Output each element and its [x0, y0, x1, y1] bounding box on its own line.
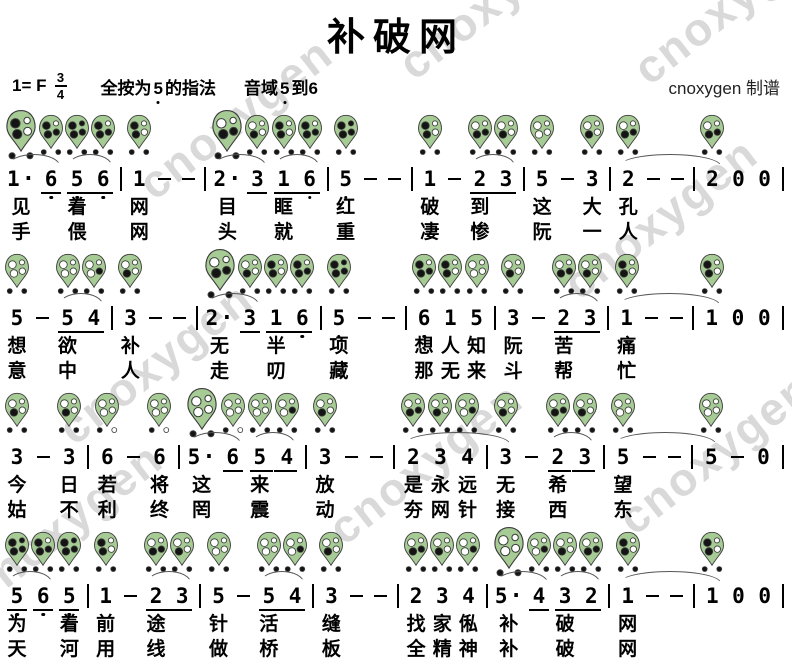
- lyric-line2-char: 走: [203, 359, 237, 384]
- note-cell: 2是夯: [400, 387, 426, 523]
- lyric-line2-char: [778, 220, 788, 245]
- note-number: 5: [470, 306, 483, 330]
- eighth-underline: [266, 331, 289, 333]
- lyric-line1-char: [752, 195, 778, 220]
- diagram-spacer: [726, 109, 752, 163]
- barline: [523, 167, 525, 191]
- lyric-line1-char: [220, 473, 246, 498]
- note-fingering-diagram: [699, 109, 725, 163]
- lyric-line1-char: 知: [464, 334, 490, 359]
- ocarina-leaf-icon: [400, 387, 426, 441]
- note-number: 0: [758, 306, 771, 330]
- duration-dash: [662, 441, 686, 473]
- duration-dash: [158, 178, 171, 181]
- duration-dash: [31, 441, 55, 473]
- note-cell: 5来震: [247, 387, 273, 523]
- note-cell: 2·目头: [210, 109, 244, 245]
- duration-dash: [555, 163, 579, 195]
- lyric-line1-char: 孔: [615, 195, 641, 220]
- diagram-spacer: [407, 109, 417, 163]
- note-number: 6: [303, 167, 316, 191]
- lyric-line2-char: [407, 220, 417, 245]
- note-number: 1: [277, 167, 290, 191]
- lyric-line2-char: 来: [464, 359, 490, 384]
- barline-cell: [393, 526, 403, 662]
- note-number: 6: [297, 163, 323, 195]
- lyric-line1-char: 欲: [55, 334, 81, 359]
- eighth-underline: [41, 192, 61, 194]
- barline-cell: [83, 387, 93, 523]
- note-fingering-diagram: [615, 526, 641, 580]
- lyric-line1-char: 途: [143, 612, 169, 637]
- barline: [301, 441, 311, 473]
- duration-dash: [640, 302, 664, 334]
- note-number: 5: [4, 302, 30, 334]
- duration-dash: [665, 163, 689, 195]
- note-number: 1: [133, 167, 146, 191]
- note-number: 2: [706, 167, 719, 191]
- duration-dash: [526, 302, 550, 334]
- dash-cell: [121, 387, 145, 523]
- note-cell: 5想意: [4, 248, 30, 384]
- lyric-line2-char: [698, 498, 724, 523]
- duration-dash: [641, 163, 665, 195]
- diagram-spacer: [599, 387, 609, 441]
- lyric-line2-char: [144, 359, 168, 384]
- time-signature: 34: [55, 71, 67, 102]
- barline: [607, 306, 609, 330]
- lyric-line2-char: [200, 220, 210, 245]
- note-cell: 3阮斗: [500, 248, 526, 384]
- diagram-spacer: [168, 248, 192, 302]
- duration-dash: [237, 595, 250, 598]
- lyric-line1-char: 眶: [271, 195, 297, 220]
- note-number: 1: [417, 163, 443, 195]
- note-number: 3: [500, 302, 526, 334]
- duration-dash: [520, 441, 544, 473]
- lyric-line1-char: 无: [203, 334, 237, 359]
- note-cell: 3: [577, 248, 603, 384]
- lyric-line1-char: [169, 612, 195, 637]
- barline-cell: [603, 248, 613, 384]
- lyric-line2-char: 网: [126, 220, 152, 245]
- barline: [107, 302, 117, 334]
- lyric-line1-char: 痛: [614, 334, 640, 359]
- lyric-line1-char: [605, 195, 615, 220]
- lyric-line1-char: [359, 195, 383, 220]
- eighth-underline: [59, 609, 79, 611]
- note-fingering-diagram: [312, 387, 338, 441]
- duration-dash: [443, 163, 467, 195]
- diagram-spacer: [778, 248, 788, 302]
- lyric-line2-char: 无: [437, 359, 463, 384]
- fingering-note: 5: [154, 79, 163, 99]
- lyric-line1-char: [699, 334, 725, 359]
- dash-cell: [152, 109, 176, 245]
- note-number: 2: [585, 584, 598, 608]
- diagram-spacer: [339, 387, 363, 441]
- duration-dash: [647, 178, 660, 181]
- barline-cell: [604, 526, 614, 662]
- note-number: 0: [732, 584, 745, 608]
- dash-cell: [339, 387, 363, 523]
- lyric-line2-char: 终: [146, 498, 172, 523]
- lyric-line2-char: [364, 498, 388, 523]
- eighth-underline: [554, 331, 577, 333]
- note-cell: 4远针: [454, 387, 480, 523]
- note-cell: 3永网: [427, 387, 453, 523]
- note-cell: 1·见手: [4, 109, 38, 245]
- duration-dash: [665, 580, 689, 612]
- barline: [192, 302, 202, 334]
- duration-dash: [374, 595, 387, 598]
- note-number: 0: [757, 445, 770, 469]
- lyric-line1-char: [665, 612, 689, 637]
- barline-cell: [301, 387, 311, 523]
- ocarina-leaf-icon: [289, 248, 315, 302]
- note-fingering-diagram: [56, 526, 82, 580]
- note-cell: 2: [699, 109, 725, 245]
- lyric-line1-char: 补: [117, 334, 143, 359]
- eighth-underline: [90, 192, 113, 194]
- diagram-spacer: [232, 526, 256, 580]
- diagram-spacer: [174, 387, 184, 441]
- range-to-note: 6: [308, 79, 317, 98]
- note-number: 4: [281, 445, 294, 469]
- low-octave-dot: [301, 335, 305, 339]
- dash-cell: [168, 248, 192, 384]
- note-number: 3: [436, 584, 449, 608]
- lyric-line2-char: [174, 498, 184, 523]
- diagram-spacer: [443, 109, 467, 163]
- note-cell: 5针做: [206, 526, 232, 662]
- lyric-line1-char: [778, 334, 788, 359]
- eighth-underline: [33, 609, 53, 611]
- note-number: 6: [146, 441, 172, 473]
- diagram-spacer: [345, 526, 369, 580]
- lyric-line2-char: 东: [610, 498, 636, 523]
- diagram-spacer: [144, 248, 168, 302]
- diagram-spacer: [778, 109, 788, 163]
- lyric-line1-char: [662, 473, 686, 498]
- ocarina-leaf-icon: [615, 526, 641, 580]
- duration-dash: [369, 580, 393, 612]
- barline: [490, 302, 500, 334]
- duration-dash: [525, 456, 538, 459]
- note-number: 3: [434, 445, 447, 469]
- note-cell: 2途线: [143, 526, 169, 662]
- lyric-line1-char: 破: [552, 612, 578, 637]
- barline-cell: [482, 526, 492, 662]
- note-cell: 6: [220, 387, 246, 523]
- barline: [608, 584, 610, 608]
- diagram-spacer: [490, 248, 500, 302]
- note-cell: 5·这罔: [185, 387, 219, 523]
- lyric-line2-char: 阮: [529, 220, 555, 245]
- lyric-line2-char: 重: [333, 220, 359, 245]
- lyric-line1-char: [577, 334, 603, 359]
- note-number: 5: [64, 163, 90, 195]
- note-number: 3: [169, 580, 195, 612]
- lyric-line2-char: [687, 498, 697, 523]
- lyric-line2-char: [116, 220, 126, 245]
- diagram-spacer: [752, 526, 778, 580]
- note-cell: 6: [297, 109, 323, 245]
- note-number: 1: [99, 584, 112, 608]
- barline: [482, 441, 492, 473]
- barline-cell: [192, 248, 202, 384]
- lyric-line2-char: 针: [454, 498, 480, 523]
- lyric-line1-char: [116, 195, 126, 220]
- lyric-line2-char: 叨: [263, 359, 289, 384]
- ocarina-leaf-icon: [614, 248, 640, 302]
- diagram-spacer: [778, 526, 788, 580]
- lyric-line2-char: 凄: [417, 220, 443, 245]
- lyric-line2-char: [90, 220, 116, 245]
- diagram-spacer: [107, 248, 117, 302]
- lyric-line1-char: 永: [427, 473, 453, 498]
- lyric-line1-char: [689, 612, 699, 637]
- note-number: 5: [4, 580, 30, 612]
- duration-dash: [350, 595, 363, 598]
- note-cell: 1网网: [615, 526, 641, 662]
- lyric-line2-char: [490, 359, 500, 384]
- note-number: 3: [4, 441, 30, 473]
- duration-dash: [168, 302, 192, 334]
- ocarina-leaf-icon: [326, 248, 352, 302]
- note-number: 3: [319, 445, 332, 469]
- note-number: 5: [326, 302, 352, 334]
- fingering-instruction: 全按为5的指法: [101, 74, 216, 99]
- diagram-spacer: [323, 109, 333, 163]
- diagram-spacer: [751, 387, 777, 441]
- diagram-spacer: [726, 526, 752, 580]
- lyric-line1-char: 缝: [318, 612, 344, 637]
- lyric-line2-char: [751, 359, 777, 384]
- note-number: 1·: [4, 163, 38, 195]
- low-octave-dot: [75, 196, 79, 200]
- lyric-line1-char: [604, 612, 614, 637]
- note-number: 5: [333, 306, 346, 330]
- lyric-line1-char: [526, 334, 550, 359]
- lyric-line1-char: 网: [126, 195, 152, 220]
- barline: [604, 580, 614, 612]
- barline: [312, 584, 314, 608]
- duration-dash: [359, 163, 383, 195]
- lyric-line1-char: [752, 612, 778, 637]
- barline: [195, 580, 205, 612]
- duration-dash: [364, 441, 388, 473]
- dash-cell: [383, 109, 407, 245]
- barline-cell: [482, 387, 492, 523]
- barline: [689, 580, 699, 612]
- ocarina-leaf-icon: [699, 248, 725, 302]
- note-cell: 3缝板: [318, 526, 344, 662]
- barline: [87, 584, 89, 608]
- note-number: 5·: [492, 580, 526, 612]
- note-number: 2: [545, 441, 571, 473]
- lyric-line1-char: [751, 334, 777, 359]
- lyric-line1-char: [308, 612, 318, 637]
- barline-cell: [778, 526, 788, 662]
- lyric-line2-char: [778, 359, 788, 384]
- barline: [486, 584, 488, 608]
- lyric-line2-char: [641, 220, 665, 245]
- barline: [605, 163, 615, 195]
- duration-dash: [668, 456, 681, 459]
- lyric-line1-char: 是: [400, 473, 426, 498]
- dash-cell: [641, 109, 665, 245]
- range-label: 音域: [244, 79, 278, 98]
- lyric-line1-char: 希: [545, 473, 571, 498]
- lyric-line1-char: [401, 334, 411, 359]
- lyric-line1-char: [490, 334, 500, 359]
- note-cell: 2·无走: [203, 248, 237, 384]
- barline-cell: [83, 526, 93, 662]
- note-fingering-diagram: [146, 387, 172, 441]
- lyric-line1-char: 到: [467, 195, 493, 220]
- lyric-line1-char: [389, 473, 399, 498]
- note-fingering-diagram: [126, 109, 152, 163]
- note-number: 5·: [185, 441, 219, 473]
- note-number: 6: [418, 306, 431, 330]
- eighth-underline: [67, 192, 90, 194]
- diagram-spacer: [369, 526, 393, 580]
- lyric-line2-char: [352, 359, 376, 384]
- diagram-spacer: [176, 109, 200, 163]
- dash-cell: [232, 526, 256, 662]
- lyric-line2-char: 利: [94, 498, 120, 523]
- lyric-line2-char: [526, 359, 550, 384]
- lyric-line2-char: 头: [210, 220, 244, 245]
- note-cell: 5欲中: [55, 248, 81, 384]
- dash-cell: [637, 387, 661, 523]
- lyric-line1-char: [192, 334, 202, 359]
- note-number: 4: [289, 584, 302, 608]
- lyric-line2-char: [297, 220, 323, 245]
- duration-dash: [345, 580, 369, 612]
- note-number: 6: [97, 167, 110, 191]
- note-number: 1: [699, 580, 725, 612]
- eighth-underline: [240, 331, 260, 333]
- diagram-spacer: [520, 387, 544, 441]
- note-number: 1: [620, 306, 633, 330]
- diagram-spacer: [389, 387, 399, 441]
- lyric-line2-char: [301, 498, 311, 523]
- lyric-line2-char: [383, 220, 407, 245]
- lyric-line1-char: [377, 334, 401, 359]
- barline: [305, 445, 307, 469]
- diagram-spacer: [555, 109, 579, 163]
- key-signature: 1= F: [12, 76, 47, 96]
- note-fingering-diagram: [289, 248, 315, 302]
- lyric-line2-char: 一: [579, 220, 605, 245]
- barline: [693, 167, 695, 191]
- note-cell: 3: [572, 387, 598, 523]
- duration-dash: [144, 302, 168, 334]
- diagram-spacer: [364, 387, 388, 441]
- note-number: 2: [143, 580, 169, 612]
- barline: [687, 441, 697, 473]
- duration-dash: [345, 456, 358, 459]
- note-cell: 1眶就: [271, 109, 297, 245]
- duration-dash: [352, 302, 376, 334]
- lyric-line1-char: [383, 195, 407, 220]
- barline: [782, 584, 784, 608]
- lyric-line1-char: [482, 612, 492, 637]
- lyric-line1-char: [244, 195, 270, 220]
- barline-cell: [107, 248, 117, 384]
- note-number: 0: [751, 441, 777, 473]
- augmentation-dot: ·: [22, 167, 35, 192]
- ocarina-leaf-icon: [146, 387, 172, 441]
- note-number: 1: [7, 167, 20, 191]
- duration-dash: [124, 595, 137, 598]
- note-cell: 2孔人: [615, 109, 641, 245]
- ocarina-leaf-icon: [455, 526, 481, 580]
- barline: [599, 441, 609, 473]
- duration-dash: [377, 302, 401, 334]
- dash-cell: [176, 109, 200, 245]
- range-from-note: 5: [280, 79, 289, 99]
- note-cell: 5红重: [333, 109, 359, 245]
- lyric-line2-char: 帮: [551, 359, 577, 384]
- note-number: 5: [56, 580, 82, 612]
- diagram-spacer: [83, 526, 93, 580]
- note-number: 2: [467, 163, 493, 195]
- note-fingering-diagram: [493, 387, 519, 441]
- diagram-spacer: [301, 387, 311, 441]
- note-number: 3: [572, 441, 598, 473]
- note-number: 4: [526, 580, 552, 612]
- note-number: 5: [188, 445, 201, 469]
- note-fingering-diagram: [4, 387, 30, 441]
- ocarina-leaf-icon: [94, 387, 120, 441]
- rest-cell: 0: [752, 109, 778, 245]
- lyric-line1-char: [323, 195, 333, 220]
- diagram-spacer: [152, 109, 176, 163]
- lyric-line1-char: [316, 334, 326, 359]
- eighth-underline: [274, 192, 297, 194]
- lyric-line2-char: [637, 498, 661, 523]
- lyric-line2-char: [38, 220, 64, 245]
- lyric-line2-char: [121, 498, 145, 523]
- lyric-line2-char: 动: [312, 498, 338, 523]
- note-fingering-diagram: [464, 248, 490, 302]
- note-fingering-diagram: [263, 248, 289, 302]
- lyric-line1-char: [555, 195, 579, 220]
- note-cell: 6将终: [146, 387, 172, 523]
- dash-cell: [119, 526, 143, 662]
- ocarina-leaf-icon: [263, 248, 289, 302]
- diagram-spacer: [377, 248, 401, 302]
- lyric-line2-char: 不: [56, 498, 82, 523]
- note-fingering-diagram: [318, 526, 344, 580]
- note-cell: 1: [699, 526, 725, 662]
- note-cell: 4: [274, 387, 300, 523]
- diagram-spacer: [526, 248, 550, 302]
- note-cell: 5着河: [56, 526, 82, 662]
- lyric-line1-char: [232, 612, 256, 637]
- dash-cell: [725, 387, 749, 523]
- lyric-line1-char: [664, 334, 688, 359]
- barline-cell: [389, 387, 399, 523]
- lyric-line2-char: [401, 359, 411, 384]
- lyric-line1-char: [726, 195, 752, 220]
- lyric-line2-char: [237, 359, 263, 384]
- lyric-line1-char: [81, 334, 107, 359]
- note-cell: 3今姑: [4, 387, 30, 523]
